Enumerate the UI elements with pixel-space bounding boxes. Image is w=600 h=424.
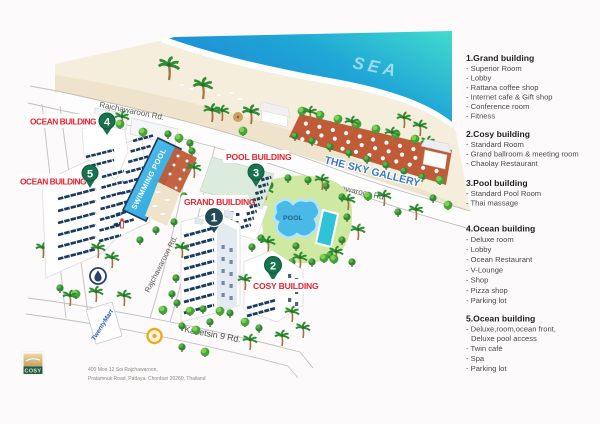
svg-text:3.Pool building: 3.Pool building bbox=[466, 178, 528, 188]
svg-text:- Pizza shop: - Pizza shop bbox=[466, 286, 508, 295]
svg-text:- Deluxe room: - Deluxe room bbox=[466, 235, 514, 244]
svg-text:1: 1 bbox=[211, 211, 218, 225]
svg-text:- V-Lounge: - V-Lounge bbox=[466, 265, 503, 274]
svg-text:COSY BUILDING: COSY BUILDING bbox=[253, 281, 319, 291]
svg-text:- Spa: - Spa bbox=[466, 354, 485, 363]
svg-text:GRAND BUILDING: GRAND BUILDING bbox=[184, 197, 256, 207]
svg-text:5.Ocean building: 5.Ocean building bbox=[466, 314, 535, 324]
svg-text:2: 2 bbox=[270, 261, 276, 273]
svg-text:- Standard Room: - Standard Room bbox=[466, 140, 524, 149]
svg-text:- Superior Room: - Superior Room bbox=[466, 64, 522, 73]
svg-text:- Fitness: - Fitness bbox=[466, 112, 495, 121]
svg-text:- Deluxe,room,ocean front,: - Deluxe,room,ocean front, bbox=[466, 325, 556, 334]
svg-text:- Standard Pool Room: - Standard Pool Room bbox=[466, 189, 541, 198]
svg-text:4.Ocean building: 4.Ocean building bbox=[466, 224, 535, 234]
svg-text:- Conference room: - Conference room bbox=[466, 102, 529, 111]
svg-text:- Ocean Restaurant: - Ocean Restaurant bbox=[466, 255, 533, 264]
svg-text:POOL: POOL bbox=[283, 215, 303, 222]
svg-text:- Rattana coffee shop: - Rattana coffee shop bbox=[466, 83, 538, 92]
svg-text:- Chaolay Restaurant: - Chaolay Restaurant bbox=[466, 159, 539, 168]
svg-text:- Thai massage: - Thai massage bbox=[466, 199, 518, 208]
svg-text:- Parking lot: - Parking lot bbox=[466, 364, 507, 373]
svg-text:400 Moo 12 Soi Rajchawaroon,: 400 Moo 12 Soi Rajchawaroon, bbox=[88, 367, 158, 373]
svg-text:- Twin café: - Twin café bbox=[466, 344, 503, 353]
svg-text:- Internet cafe & Gift shop: - Internet cafe & Gift shop bbox=[466, 93, 553, 102]
svg-text:3: 3 bbox=[253, 168, 259, 180]
svg-text:- Shop: - Shop bbox=[466, 276, 488, 285]
svg-text:- Parking lot: - Parking lot bbox=[466, 296, 507, 305]
svg-text:OCEAN BUILDING: OCEAN BUILDING bbox=[30, 117, 96, 127]
svg-text:POOL BUILDING: POOL BUILDING bbox=[226, 152, 292, 162]
svg-text:Pratamnuk Road, Pattaya, Chonb: Pratamnuk Road, Pattaya, Chonburi 20260,… bbox=[88, 376, 206, 382]
svg-text:OCEAN BUILDING: OCEAN BUILDING bbox=[20, 177, 86, 187]
svg-text:5: 5 bbox=[87, 169, 93, 181]
svg-text:- Lobby: - Lobby bbox=[466, 74, 492, 83]
svg-text:- Grand ballroom & meeting ro: - Grand ballroom & meeting room bbox=[466, 150, 579, 159]
svg-text:- Lobby: - Lobby bbox=[466, 245, 492, 254]
svg-text:Deluxe pool access: Deluxe pool access bbox=[471, 334, 537, 343]
svg-text:1.Grand building: 1.Grand building bbox=[466, 53, 534, 63]
svg-text:COSY: COSY bbox=[25, 369, 42, 375]
svg-text:4: 4 bbox=[104, 117, 111, 129]
svg-text:2.Cosy building: 2.Cosy building bbox=[466, 129, 530, 139]
